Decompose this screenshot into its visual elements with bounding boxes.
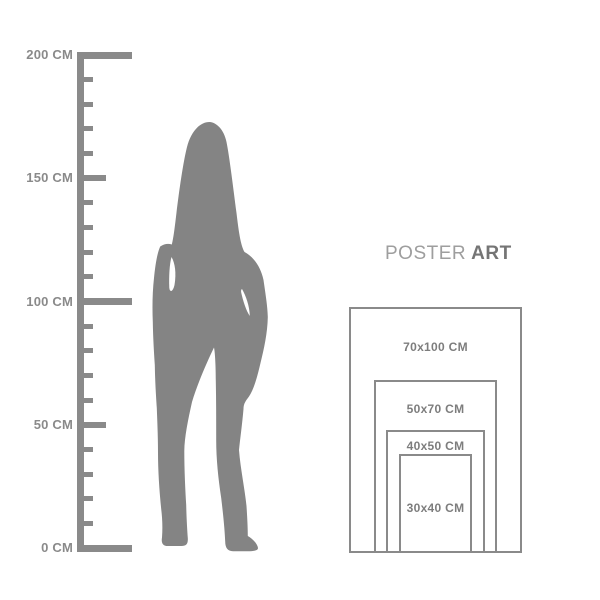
poster-size-label-40x50: 40x50 CM <box>407 439 465 453</box>
poster-size-label-30x40: 30x40 CM <box>407 501 465 515</box>
poster-size-label-70x100: 70x100 CM <box>403 340 468 354</box>
poster-size-infographic: 200 CM150 CM100 CM50 CM0 CM POSTERART 70… <box>0 0 600 600</box>
poster-size-label-50x70: 50x70 CM <box>407 402 465 416</box>
poster-size-chart: 70x100 CM50x70 CM40x50 CM30x40 CM <box>0 0 600 600</box>
